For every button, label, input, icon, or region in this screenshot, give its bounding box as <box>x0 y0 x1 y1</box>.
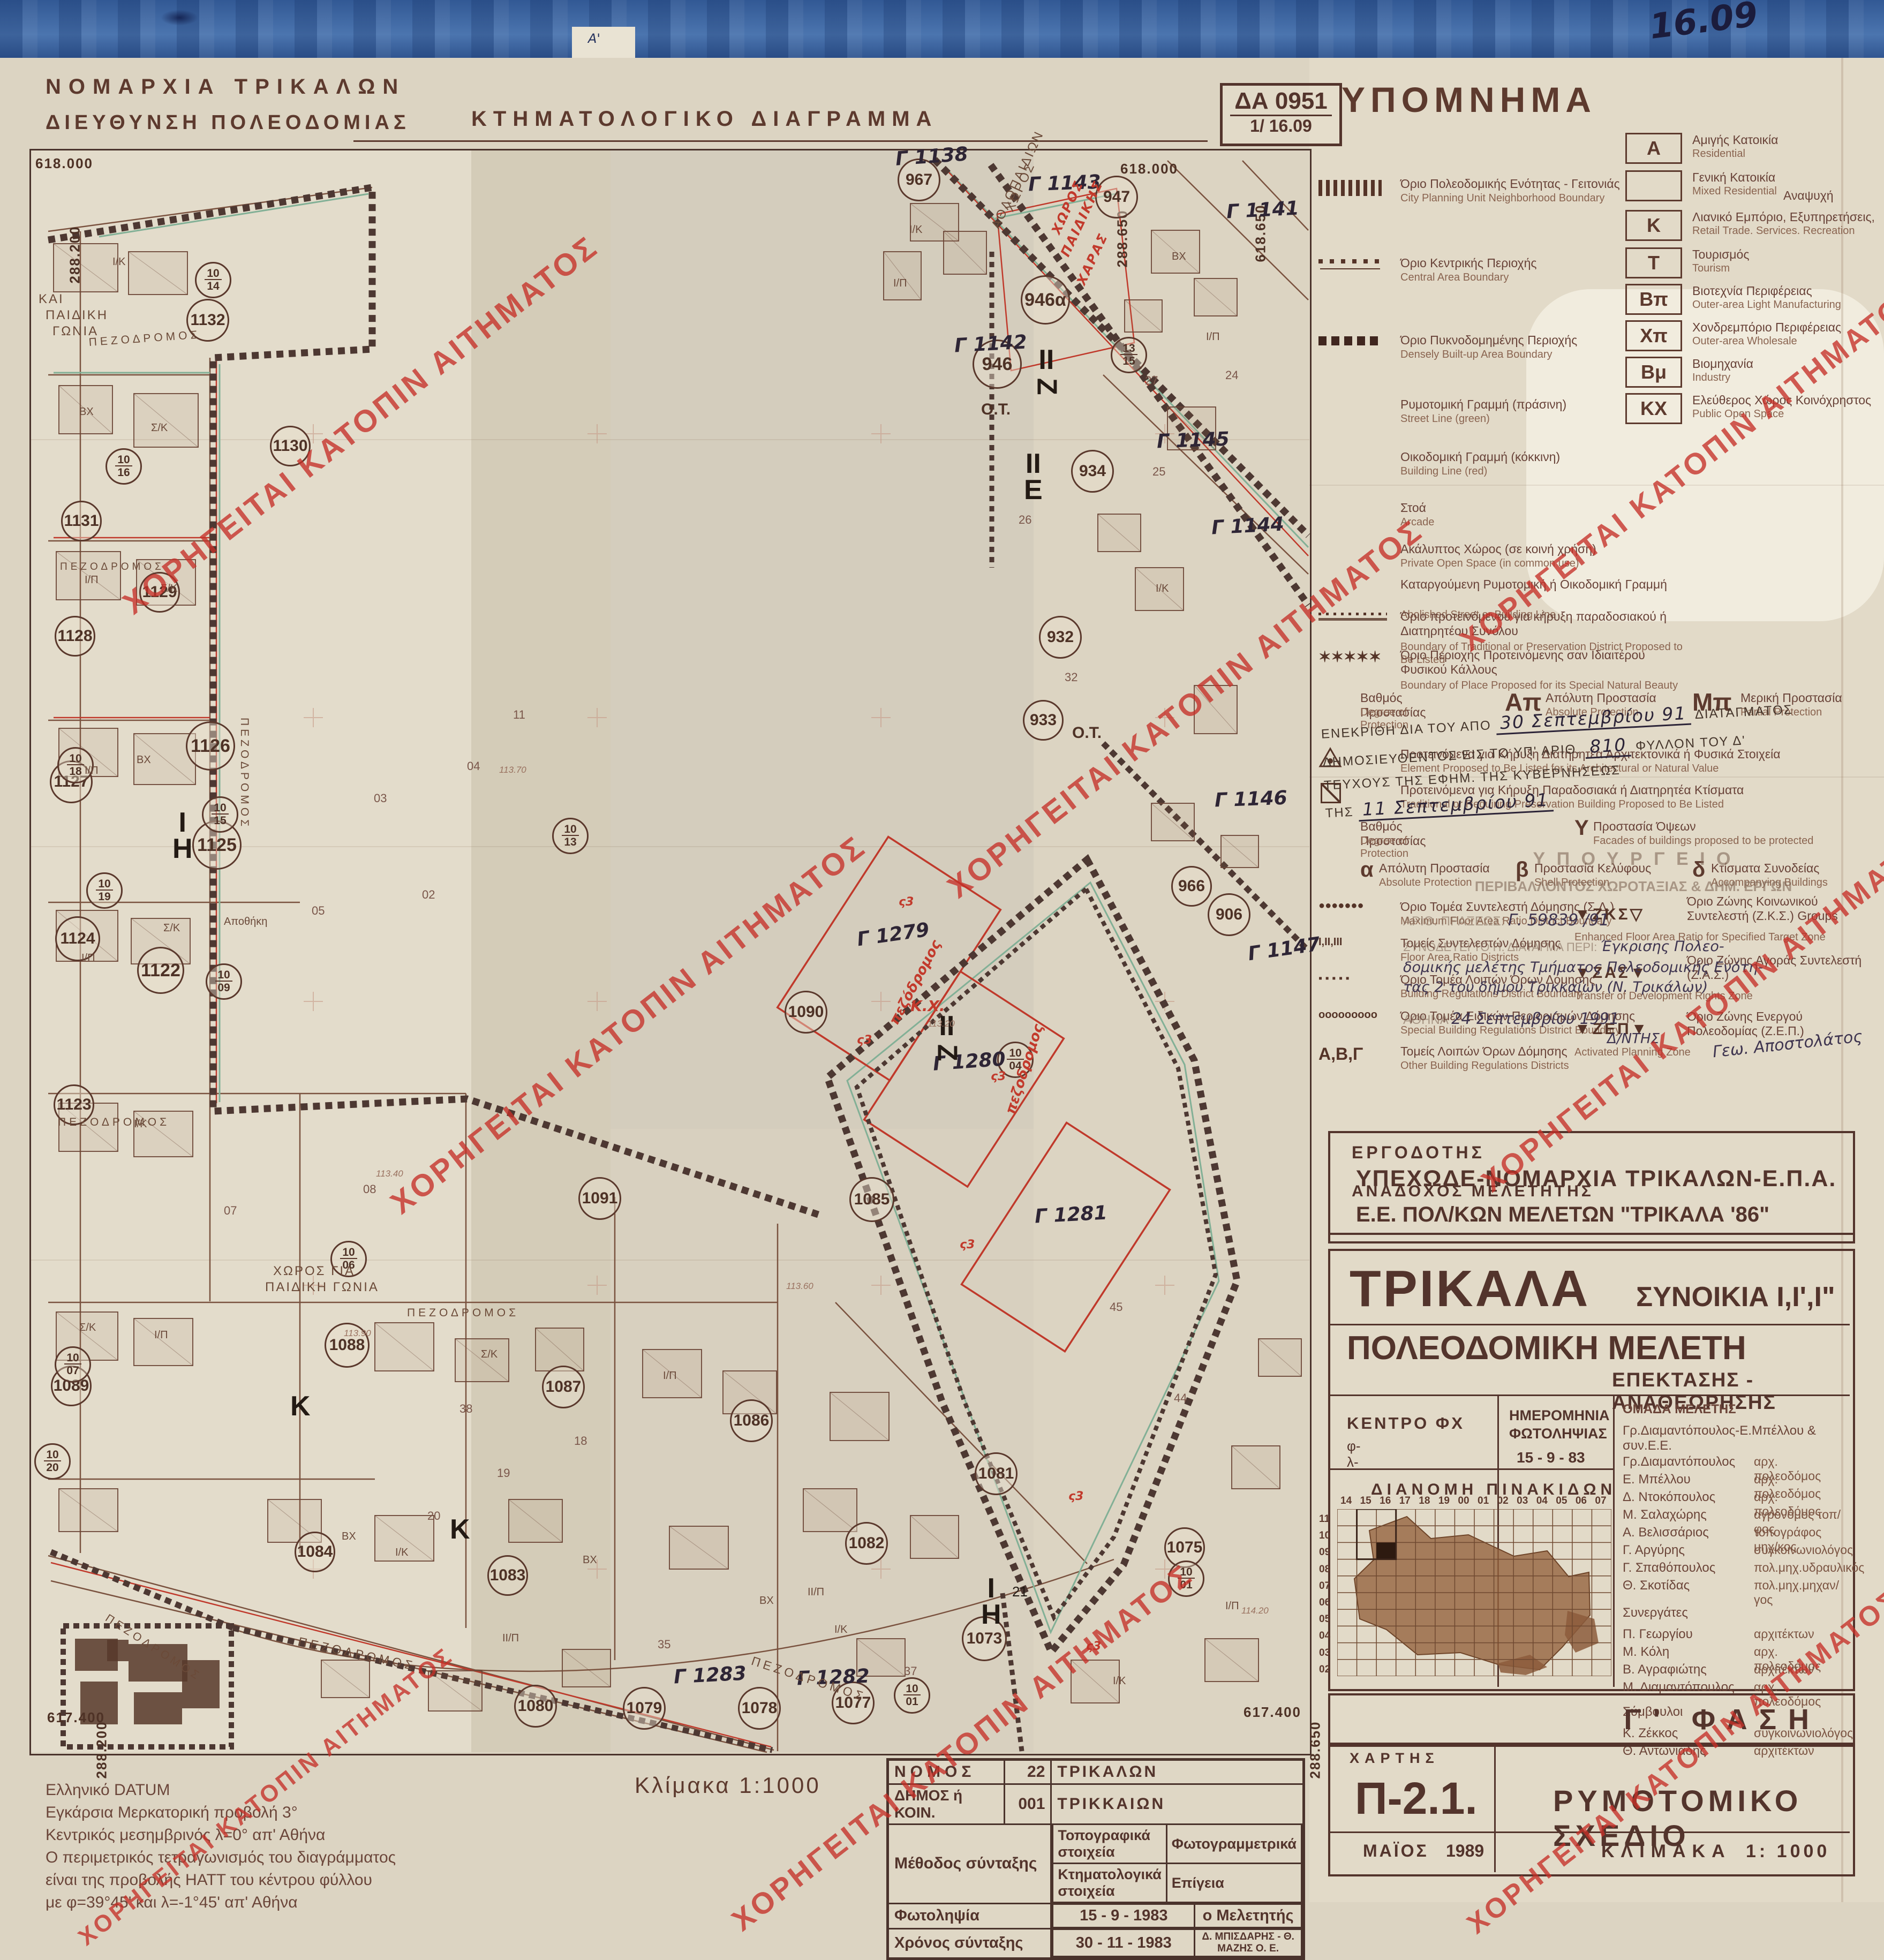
parcel-use-code: Ι/Π <box>893 277 907 290</box>
datum-line: Ο περιμετρικός τετραγωνισμός του διαγράμ… <box>46 1846 396 1869</box>
fraction-bottom: 15 <box>1122 355 1135 367</box>
block-number-circle: 1085 <box>849 1177 894 1222</box>
scale-label: ΚΛΙΜΑΚΑ <box>1601 1841 1731 1862</box>
area-use-label: ΧΩΡΟΣ ΓΙΑ <box>273 1264 355 1279</box>
zone-box-Βμ: Βμ <box>1625 357 1682 388</box>
grid-row-label: 08 <box>1319 1564 1330 1575</box>
parcel-use-code: Ι/Π <box>85 574 99 586</box>
protection2-code-α: α <box>1360 858 1374 882</box>
gamma-parcel-label: Γ 1145 <box>1156 428 1230 453</box>
parcel-use-code: Αποθήκη <box>224 916 267 928</box>
zone-en: Tourism <box>1692 262 1884 275</box>
zone-en: Retail Trade. Services. Recreation <box>1692 224 1884 237</box>
parcel-use-code: ΙΙ/Π <box>808 1586 824 1599</box>
parcel-number: 35 <box>658 1638 670 1652</box>
compile-date: 30 - 11 - 1983 <box>1053 1929 1195 1957</box>
parcel-number: 03 <box>374 791 387 805</box>
nomos-value: ΤΡΙΚΑΛΩΝ <box>1051 1760 1304 1784</box>
parcel-number: 45 <box>1110 1300 1122 1314</box>
parcel-use-code: Ι/Κ <box>134 1118 147 1130</box>
protection2-degree-label-en: Degree of Protection <box>1360 834 1408 860</box>
area-use-label: ΚΑΙ <box>39 292 64 307</box>
recreation-note: Αναψυχή <box>1783 189 1834 203</box>
protection2-en: Facades of buildings proposed to be prot… <box>1593 834 1823 847</box>
sector-line2: Η <box>172 836 193 862</box>
parcel-number: 26 <box>1019 513 1031 527</box>
fraction-top: 10 <box>903 1683 920 1695</box>
red-annotation: ς3 <box>960 1238 975 1252</box>
chart-label: ΧΑΡΤΗΣ <box>1350 1750 1440 1767</box>
hatch-symbol <box>1318 180 1382 196</box>
fraction-top: 10 <box>64 1352 81 1365</box>
block-number-circle: 1083 <box>487 1555 528 1596</box>
photo-label: Φωτοληψία <box>888 1903 1051 1928</box>
gamma-parcel-label: Γ 1147 <box>1247 933 1322 965</box>
team-member-name: Μ. Κόλη <box>1623 1645 1669 1660</box>
team-member-name: Α. Βελισσάριος <box>1623 1525 1709 1540</box>
block-number-circle: 1078 <box>738 1687 781 1730</box>
team-member-name: Β. Αγραφιώτης <box>1623 1662 1707 1677</box>
fraction-top: 10 <box>562 824 578 836</box>
stars-symbol: ✶✶✶✶✶ <box>1318 648 1381 666</box>
datum-line: Ελληνικό DATUM <box>46 1779 396 1801</box>
photo-date-label-2: ΦΩΤΟΛΗΨΙΑΣ <box>1509 1426 1607 1442</box>
sector-roman-mark: ΙΙΖ <box>1038 347 1055 400</box>
parcel-number: 11 <box>513 708 525 722</box>
photo-date-label-1: ΗΜΕΡΟΜΗΝΙΑ <box>1509 1407 1610 1424</box>
sector-line1: Ι <box>981 1575 1001 1602</box>
block-number-circle: 932 <box>1039 616 1082 659</box>
sector-roman-mark: Κ <box>290 1393 311 1420</box>
parcel-number: 20 <box>427 1509 440 1523</box>
parcel-use-code: Ι/Κ <box>395 1547 408 1559</box>
sector-line2: Ζ <box>933 1044 960 1061</box>
zone-gr: Λιανικό Εμπόριο, Εξυπηρετήσεις, <box>1692 210 1884 224</box>
ministry-line1: Υ Π Ο Υ Ρ Γ Ε Ι Ο <box>1403 849 1864 870</box>
team-member-name: Μ. Διαμαντόπουλος <box>1623 1680 1735 1695</box>
chart-code: Π-2.1. <box>1355 1773 1478 1825</box>
consultant-label: ΑΝΑΔΟΧΟΣ ΜΕΛΕΤΗΤΗΣ <box>1352 1182 1853 1201</box>
fraction-top: 10 <box>340 1247 357 1259</box>
grid-row-label: 04 <box>1319 1630 1330 1642</box>
issue-year: 1989 <box>1446 1841 1484 1861</box>
fraction-top: 10 <box>96 878 112 891</box>
fraction-bottom: 20 <box>46 1461 58 1474</box>
far-symbol: Α,Β,Γ <box>1318 1044 1363 1064</box>
map-corner-coordinate: 617.400 <box>1244 1704 1301 1721</box>
grid-row-label: 05 <box>1319 1614 1330 1625</box>
fraction-top: 10 <box>67 753 84 765</box>
sheet-fraction-circle: 1007 <box>55 1346 91 1383</box>
red-annotation: ς3 <box>857 1034 872 1047</box>
area-use-label: ΠΑΙΔΙΚΗ <box>46 308 108 323</box>
grid-row-label: 06 <box>1319 1597 1330 1609</box>
block-number-circle: 934 <box>1071 450 1114 493</box>
gamma-parcel-label: Γ 1146 <box>1214 787 1287 812</box>
team-member-role: πολ.μηχ.υδραυλικός <box>1754 1561 1864 1575</box>
ministry-line2: ΠΕΡΙΒΑΛΛΟΝΤΟΣ ΧΩΡΟΤΑΞΙΑΣ & ΔΗΜ. ΕΡΓΩΝ <box>1403 878 1864 895</box>
sector-line1: Κ <box>290 1393 311 1420</box>
grid-col-label: 00 <box>1458 1495 1469 1507</box>
parcel-number: 44 <box>1174 1391 1187 1405</box>
study-city: ΤΡΙΚΑΛΑ <box>1350 1260 1590 1318</box>
team-member-role: συγκοινωνιολόγος <box>1754 1543 1853 1557</box>
tape-ink-blot <box>161 10 198 26</box>
parcel-number: 02 <box>422 888 435 902</box>
block-number-circle: 906 <box>1208 893 1250 936</box>
fraction-bottom: 18 <box>69 765 81 778</box>
elevation-value: 113.70 <box>499 765 526 775</box>
parcel-number: 04 <box>467 759 480 773</box>
legend-item-gr: Οικοδομική Γραμμή (κόκκινη) <box>1400 450 1690 464</box>
legend-item-en: Boundary of Place Proposed for its Speci… <box>1400 679 1690 692</box>
sector-line1: ΙΙ <box>1038 347 1055 373</box>
divider <box>1329 1324 1850 1325</box>
parcel-use-code: Σ/Κ <box>481 1348 498 1361</box>
grid-col-label: 05 <box>1556 1495 1567 1507</box>
zone-gr: Γενική Κατοικία <box>1692 170 1884 185</box>
block-number-circle: 1131 <box>61 501 102 541</box>
dots2-symbol <box>1318 259 1382 263</box>
grid-col-label: 04 <box>1536 1495 1548 1507</box>
elevation-value: 114.20 <box>1241 1605 1269 1616</box>
legend-item-gr: Ακάλυπτος Χώρος (σε κοινή χρήση) <box>1400 542 1690 556</box>
grid-col-label: 02 <box>1497 1495 1509 1507</box>
block-number-circle: 1090 <box>785 991 827 1034</box>
zone-box-Χπ: Χπ <box>1625 320 1682 351</box>
grid-col-label: 17 <box>1399 1495 1411 1507</box>
issue-month: ΜΑΪΟΣ <box>1363 1841 1429 1861</box>
zone-en: Outer-area Light Manufacturing <box>1692 298 1884 311</box>
fraction-bottom: 16 <box>117 466 130 479</box>
sector-line2: Ζ <box>1033 378 1059 395</box>
parcel-use-code: Ι/Κ <box>834 1624 847 1636</box>
lambda-label: λ- <box>1347 1454 1359 1471</box>
area-use-label: ΠΑΙΔΙΚΗ ΓΩΝΙΑ <box>265 1280 379 1295</box>
block-number-circle: 1086 <box>730 1399 773 1442</box>
elevation-value: 113.40 <box>376 1169 403 1179</box>
parcel-number: 38 <box>459 1402 472 1416</box>
team-member-role: αρχιτέκτων <box>1754 1627 1814 1641</box>
elevation-value: 113.60 <box>786 1281 813 1292</box>
street-label-pedestrian: ΠΕΖΟΔΡΟΜΟΣ <box>88 328 201 349</box>
parcel-number: 32 <box>1065 670 1077 684</box>
block-number-circle: 1081 <box>975 1452 1018 1495</box>
meletitis-name: Δ. ΜΠΙΣΔΑΡΗΣ - Θ. ΜΑΖΗΣ Ο. Ε. <box>1195 1929 1302 1957</box>
parcel-number: 08 <box>363 1182 376 1196</box>
tape-patch <box>572 27 635 58</box>
sector-line1: Ι <box>172 810 193 836</box>
fraction-bottom: 07 <box>66 1365 79 1377</box>
ot-block-label: Ο.Τ. <box>1072 724 1102 742</box>
fraction-bottom: 14 <box>207 280 219 292</box>
dense-symbol <box>1318 336 1382 345</box>
method-label: Μέθοδος σύνταξης <box>888 1825 1051 1904</box>
team-member-name: Ε. Μπέλλου <box>1623 1472 1691 1487</box>
sector-line1: ΙΙ <box>1024 451 1043 477</box>
sheet-fraction-circle: 1015 <box>202 796 238 833</box>
fraction-top: 10 <box>44 1449 61 1461</box>
gamma-parcel-label: Γ 1281 <box>1034 1202 1108 1227</box>
far-symbol: οοοοοοοοο <box>1318 1009 1377 1021</box>
zone-box-Α: Α <box>1625 133 1682 164</box>
study-district: ΣΥΝΟΙΚΙΑ Ι,Ι',Ι" <box>1636 1281 1835 1313</box>
elevation-value: 113.90 <box>344 1328 371 1339</box>
parcel-use-code: Σ/Κ <box>151 422 168 434</box>
parcel-use-code: Ι/Π <box>1206 331 1220 343</box>
area-use-label: ΓΩΝΙΑ <box>52 324 99 339</box>
parcel-use-code: Ι/Κ <box>112 256 125 268</box>
gamma-parcel-label: Γ 1279 <box>856 919 931 951</box>
sheet-fraction-circle: 1016 <box>105 448 142 485</box>
protection2-code-Υ: Υ <box>1574 816 1589 840</box>
map-corner-coordinate: 288.650 <box>1307 1721 1323 1779</box>
elevation-value: 113.20 <box>928 1019 955 1029</box>
legend-item-en: Building Line (red) <box>1400 465 1690 478</box>
ministry-subject-3: τας 2 του δήμου Τρικκαίων (Ν. Τρικάλων) <box>1403 979 1864 996</box>
far-symbol: Ι,ΙΙ,ΙΙΙ <box>1318 936 1342 948</box>
zone-gr: Τουρισμός <box>1692 247 1884 262</box>
team-member-name: Π. Γεωργίου <box>1623 1627 1693 1642</box>
legend-title: ΥΠΟΜΝΗΜΑ <box>1342 79 1596 120</box>
sector-extra: 21 <box>1012 1585 1028 1599</box>
grid-col-label: 03 <box>1517 1495 1528 1507</box>
zone-box-Τ: Τ <box>1625 247 1682 278</box>
team-member-name: Συνεργάτες <box>1623 1605 1688 1620</box>
grid-row-label: 10 <box>1319 1530 1330 1542</box>
cell-divider-v2 <box>1613 1394 1615 1687</box>
protection-gr: Απόλυτη Προστασία <box>1546 691 1685 705</box>
parcel-use-code: Ι/Κ <box>909 224 922 236</box>
street-label-pedestrian: ΠΕΖΟΔΡΟΜΟΣ <box>407 1307 519 1320</box>
method-cadastral-type: Επίγεια <box>1166 1864 1301 1903</box>
grid-col-label: 14 <box>1340 1495 1352 1507</box>
zone-box-Κ: Κ <box>1625 210 1682 241</box>
far-symbol: ●●●●●●● <box>1318 900 1364 912</box>
sheet-index-map <box>1337 1509 1611 1676</box>
zone-en: Residential <box>1692 147 1884 160</box>
zone-gr: Αμιγής Κατοικία <box>1692 133 1884 147</box>
gamma-parcel-label: Γ 1138 <box>895 143 969 170</box>
fraction-top: 13 <box>1120 343 1137 355</box>
study-type: ΠΟΛΕΟΔΟΜΙΚΗ ΜΕΛΕΤΗ <box>1347 1329 1746 1367</box>
table-row: Χρόνος σύνταξης 30 - 11 - 1983 Δ. ΜΠΙΣΔΑ… <box>888 1928 1304 1959</box>
parcel-use-code: Ι/Κ <box>1156 583 1169 595</box>
block-number-circle: 1126 <box>186 721 235 771</box>
blue-tape: Α' 16.09 <box>0 0 1884 58</box>
table-row: Μέθοδος σύνταξης Τοπογραφικά στοιχεία Φω… <box>888 1825 1304 1904</box>
parcel-use-code: Ι/Π <box>663 1370 677 1382</box>
team-member-name: Γ. Σπαθόπουλος <box>1623 1561 1715 1575</box>
block-number-circle: 1091 <box>578 1177 621 1220</box>
sheet-fraction-circle: 1014 <box>195 262 231 298</box>
map-corner-coordinate: 618.000 <box>35 155 93 172</box>
grid-col-label: 15 <box>1360 1495 1371 1507</box>
fraction-top: 10 <box>215 969 232 982</box>
sheet-fraction-circle: 1013 <box>552 818 589 854</box>
sector-roman-mark: ΙΗ <box>172 810 193 863</box>
parcel-number: 19 <box>497 1466 510 1480</box>
zone-gr: Βιοτεχνία Περιφέρειας <box>1692 284 1884 298</box>
grid-col-label: 16 <box>1380 1495 1391 1507</box>
parcel-use-code: ΒΧ <box>137 754 151 766</box>
team-member-name: ΟΜΑΔΑ ΜΕΛΕΤΗΣ <box>1623 1402 1736 1417</box>
sector-line2: Η <box>981 1602 1001 1628</box>
map-corner-coordinate: 288.200 <box>66 226 83 284</box>
sheet-fraction-circle: 1001 <box>894 1677 930 1714</box>
gamma-parcel-label: Γ 1144 <box>1211 513 1285 539</box>
parcel-number: 05 <box>312 904 325 918</box>
ot-block-label: Ο.Τ. <box>981 401 1011 419</box>
parcel-number: 25 <box>1152 465 1165 479</box>
parcel-use-code: Ι/Π <box>81 952 95 964</box>
legend-item-gr: Όριο Περιοχής Προτεινόμενης σαν Ιδιαιτέρ… <box>1400 648 1690 677</box>
gamma-parcel-label: Γ 1283 <box>673 1662 747 1688</box>
team-member-name: Γρ.Διαμαντόπουλος <box>1623 1454 1735 1469</box>
fraction-bottom: 19 <box>98 891 110 903</box>
parcel-use-code: ΒΧ <box>1172 251 1186 263</box>
parcel-use-code: Σ/Κ <box>163 922 180 934</box>
red-annotation: ς3 <box>991 1070 1006 1083</box>
photo-date-value: 15 - 9 - 83 <box>1517 1449 1585 1466</box>
phi-label: φ- <box>1347 1438 1361 1454</box>
parcel-use-code: ΒΧ <box>79 406 94 418</box>
map-code-divider-v <box>1494 1743 1496 1872</box>
divider <box>1329 1394 1850 1396</box>
street-label-pedestrian: ΠΕΖΟΔΡΟΜΟΣ <box>58 1116 170 1129</box>
parcel-use-code: Ι/Π <box>154 1329 168 1341</box>
zone-box-Βπ: Βπ <box>1625 284 1682 315</box>
block-number-circle: 1080 <box>514 1685 557 1728</box>
tape-handwritten-number: 16.09 <box>1647 0 1760 47</box>
parcel-use-code: ΒΧ <box>759 1595 774 1607</box>
parcel-use-code: ΒΧ <box>342 1531 356 1543</box>
nomos-code: 22 <box>1004 1760 1051 1784</box>
parcel-number: 37 <box>904 1664 917 1678</box>
sector-roman-mark: ΙΙΕ <box>1024 451 1043 504</box>
sector-roman-mark: ΙΗ21 <box>981 1575 1001 1629</box>
protection2-gr: Προστασία Όψεων <box>1593 819 1823 834</box>
street-label-pedestrian: ΠΕΖΟΔΡΟΜΟΣ <box>238 718 251 830</box>
grid-row-label: 09 <box>1319 1547 1330 1558</box>
block-number-circle: 946α <box>1021 275 1070 325</box>
red-annotation: ς3 <box>1068 1490 1083 1503</box>
sheet-fraction-circle: 1315 <box>1111 337 1147 373</box>
fraction-bottom: 15 <box>214 815 226 827</box>
parcel-use-code: Σ/Κ <box>79 1322 96 1334</box>
parcel-use-code: Ι/Π <box>85 765 99 777</box>
team-member-name: Θ. Σκοτίδας <box>1623 1578 1690 1593</box>
block-number-circle: 1087 <box>542 1366 585 1408</box>
fraction-top: 10 <box>115 454 132 466</box>
legend-item-gr: Όριο προτεινόμενου για κήρυξη παραδοσιακ… <box>1400 609 1690 638</box>
dimos-value: ΤΡΙΚΚΑΙΩΝ <box>1051 1784 1304 1825</box>
cell-divider-h <box>1329 1468 1615 1470</box>
fraction-bottom: 13 <box>564 836 576 848</box>
fraction-bottom: 09 <box>217 982 230 994</box>
parcel-use-code: Ι/Κ <box>1113 1675 1126 1687</box>
parcel-use-code: ΙΙ/Π <box>502 1632 519 1645</box>
meletitis-label: ο Μελετητής <box>1195 1904 1302 1928</box>
grid-row-label: 02 <box>1319 1664 1330 1676</box>
sheet-index-grid: 1415161718190001020304050607111009080706… <box>1337 1509 1611 1676</box>
block-number-circle: 966 <box>1171 866 1212 907</box>
block-number-circle: 1084 <box>295 1532 335 1572</box>
ministry-date: ΑΘΗΝΑ 24 Σεπτεμβρίου 1991 <box>1403 1009 1864 1028</box>
gamma-parcel-label: Γ 1142 <box>954 331 1028 357</box>
grid-col-label: 07 <box>1595 1495 1606 1507</box>
map-scale-note: Κλίμακα 1:1000 <box>635 1773 821 1798</box>
datum-line: είναι της προβολής ΗΑΤΤ του κέντρου φύλλ… <box>46 1869 396 1891</box>
sheet-fraction-circle: 1009 <box>206 963 242 1000</box>
employer-label: ΕΡΓΟΔΟΤΗΣ <box>1352 1143 1853 1163</box>
far-symbol: ▪ ▪ ▪ ▪ ▪ <box>1318 973 1350 985</box>
parcel-number: 18 <box>574 1434 587 1448</box>
table-row: ΔΗΜΟΣ ή ΚΟΙΝ. 001 ΤΡΙΚΚΑΙΩΝ <box>888 1784 1304 1825</box>
team-member-name: Γρ.Διαμαντόπουλος-Ε.Μπέλλου & συν.Ε.Ε. <box>1623 1423 1848 1453</box>
sheet-fraction-circle: 1020 <box>34 1443 71 1480</box>
parcel-use-code: ΒΧ <box>583 1554 597 1566</box>
grid-row-label: 11 <box>1319 1513 1330 1525</box>
scale-value: 1: 1000 <box>1746 1841 1830 1862</box>
zone-box-blank <box>1625 170 1682 201</box>
fraction-top: 10 <box>205 268 221 280</box>
grid-col-label: 06 <box>1576 1495 1587 1507</box>
kentro-label: ΚΕΝΤΡΟ ΦΧ <box>1347 1414 1465 1433</box>
sector-line1: Κ <box>450 1517 470 1543</box>
approval-gazette-number: 810 <box>1585 734 1631 759</box>
table-row: Φωτοληψία 15 - 9 - 1983 ο Μελετητής <box>888 1903 1304 1928</box>
block-number-circle: 933 <box>1023 700 1064 741</box>
parcel-use-code: Ι/Π <box>1225 1600 1239 1612</box>
grid-row-label: 03 <box>1319 1647 1330 1659</box>
method-topo: Τοπογραφικά στοιχεία <box>1053 1825 1166 1864</box>
method-subtable: Τοπογραφικά στοιχεία Φωτογραμμετρικά Κτη… <box>1052 1825 1302 1903</box>
grid-col-label: 19 <box>1438 1495 1450 1507</box>
sheet-fraction-circle: 1019 <box>86 872 123 909</box>
team-member-name: Γ. Αργύρης <box>1623 1543 1685 1558</box>
team-member-name: Μ. Σαλαχώρης <box>1623 1507 1707 1522</box>
street-label-pedestrian: ΠΕΖΟΔΡΟΜΟΣ <box>103 1612 204 1684</box>
map-corner-coordinate: 288.200 <box>93 1721 110 1779</box>
compile-label: Χρόνος σύνταξης <box>888 1928 1051 1959</box>
sheet-info-table: ΝΟΜΟΣ 22 ΤΡΙΚΑΛΩΝ ΔΗΜΟΣ ή ΚΟΙΝ. 001 ΤΡΙΚ… <box>886 1758 1305 1960</box>
block-number-circle: 1128 <box>55 616 95 657</box>
tape-small-mark: Α' <box>588 31 600 46</box>
sector-roman-mark: Κ <box>450 1517 470 1543</box>
sector-line2: Ε <box>1024 477 1043 503</box>
team-member-role: πολ.μηχ.μηχαν/γος <box>1754 1578 1848 1607</box>
fraction-bottom: 01 <box>906 1695 918 1708</box>
block-number-circle: 1082 <box>845 1522 888 1565</box>
consultant-name: Ε.Ε. ΠΟΛ/ΚΩΝ ΜΕΛΕΤΩΝ "ΤΡΙΚΑΛΑ '86" <box>1356 1203 1853 1227</box>
map-corner-coordinate: 618.000 <box>1120 161 1178 177</box>
scanned-cadastral-map-sheet: { "tape": { "note": "16.09", "mark": "Α'… <box>0 0 1884 1902</box>
grid-col-label: 18 <box>1419 1495 1430 1507</box>
block-number-circle: 1079 <box>623 1687 666 1730</box>
parcel-number: 07 <box>224 1204 237 1218</box>
team-member-name: Δ. Ντοκόπουλος <box>1623 1490 1715 1505</box>
fraction-top: 10 <box>212 802 228 815</box>
dimos-code: 001 <box>1004 1784 1051 1825</box>
photo-date: 15 - 9 - 1983 <box>1053 1904 1195 1928</box>
consultant-box: ΑΝΑΔΟΧΟΣ ΜΕΛΕΤΗΤΗΣ Ε.Ε. ΠΟΛ/ΚΩΝ ΜΕΛΕΤΩΝ … <box>1328 1178 1855 1243</box>
method-topo-type: Φωτογραμμετρικά <box>1166 1825 1301 1864</box>
parcel-number: 27 <box>1145 374 1158 388</box>
block-number-circle: 1122 <box>137 947 184 994</box>
zone-box-ΚΧ: ΚΧ <box>1625 393 1682 424</box>
gamma-parcel-label: Γ 1141 <box>1226 197 1300 223</box>
